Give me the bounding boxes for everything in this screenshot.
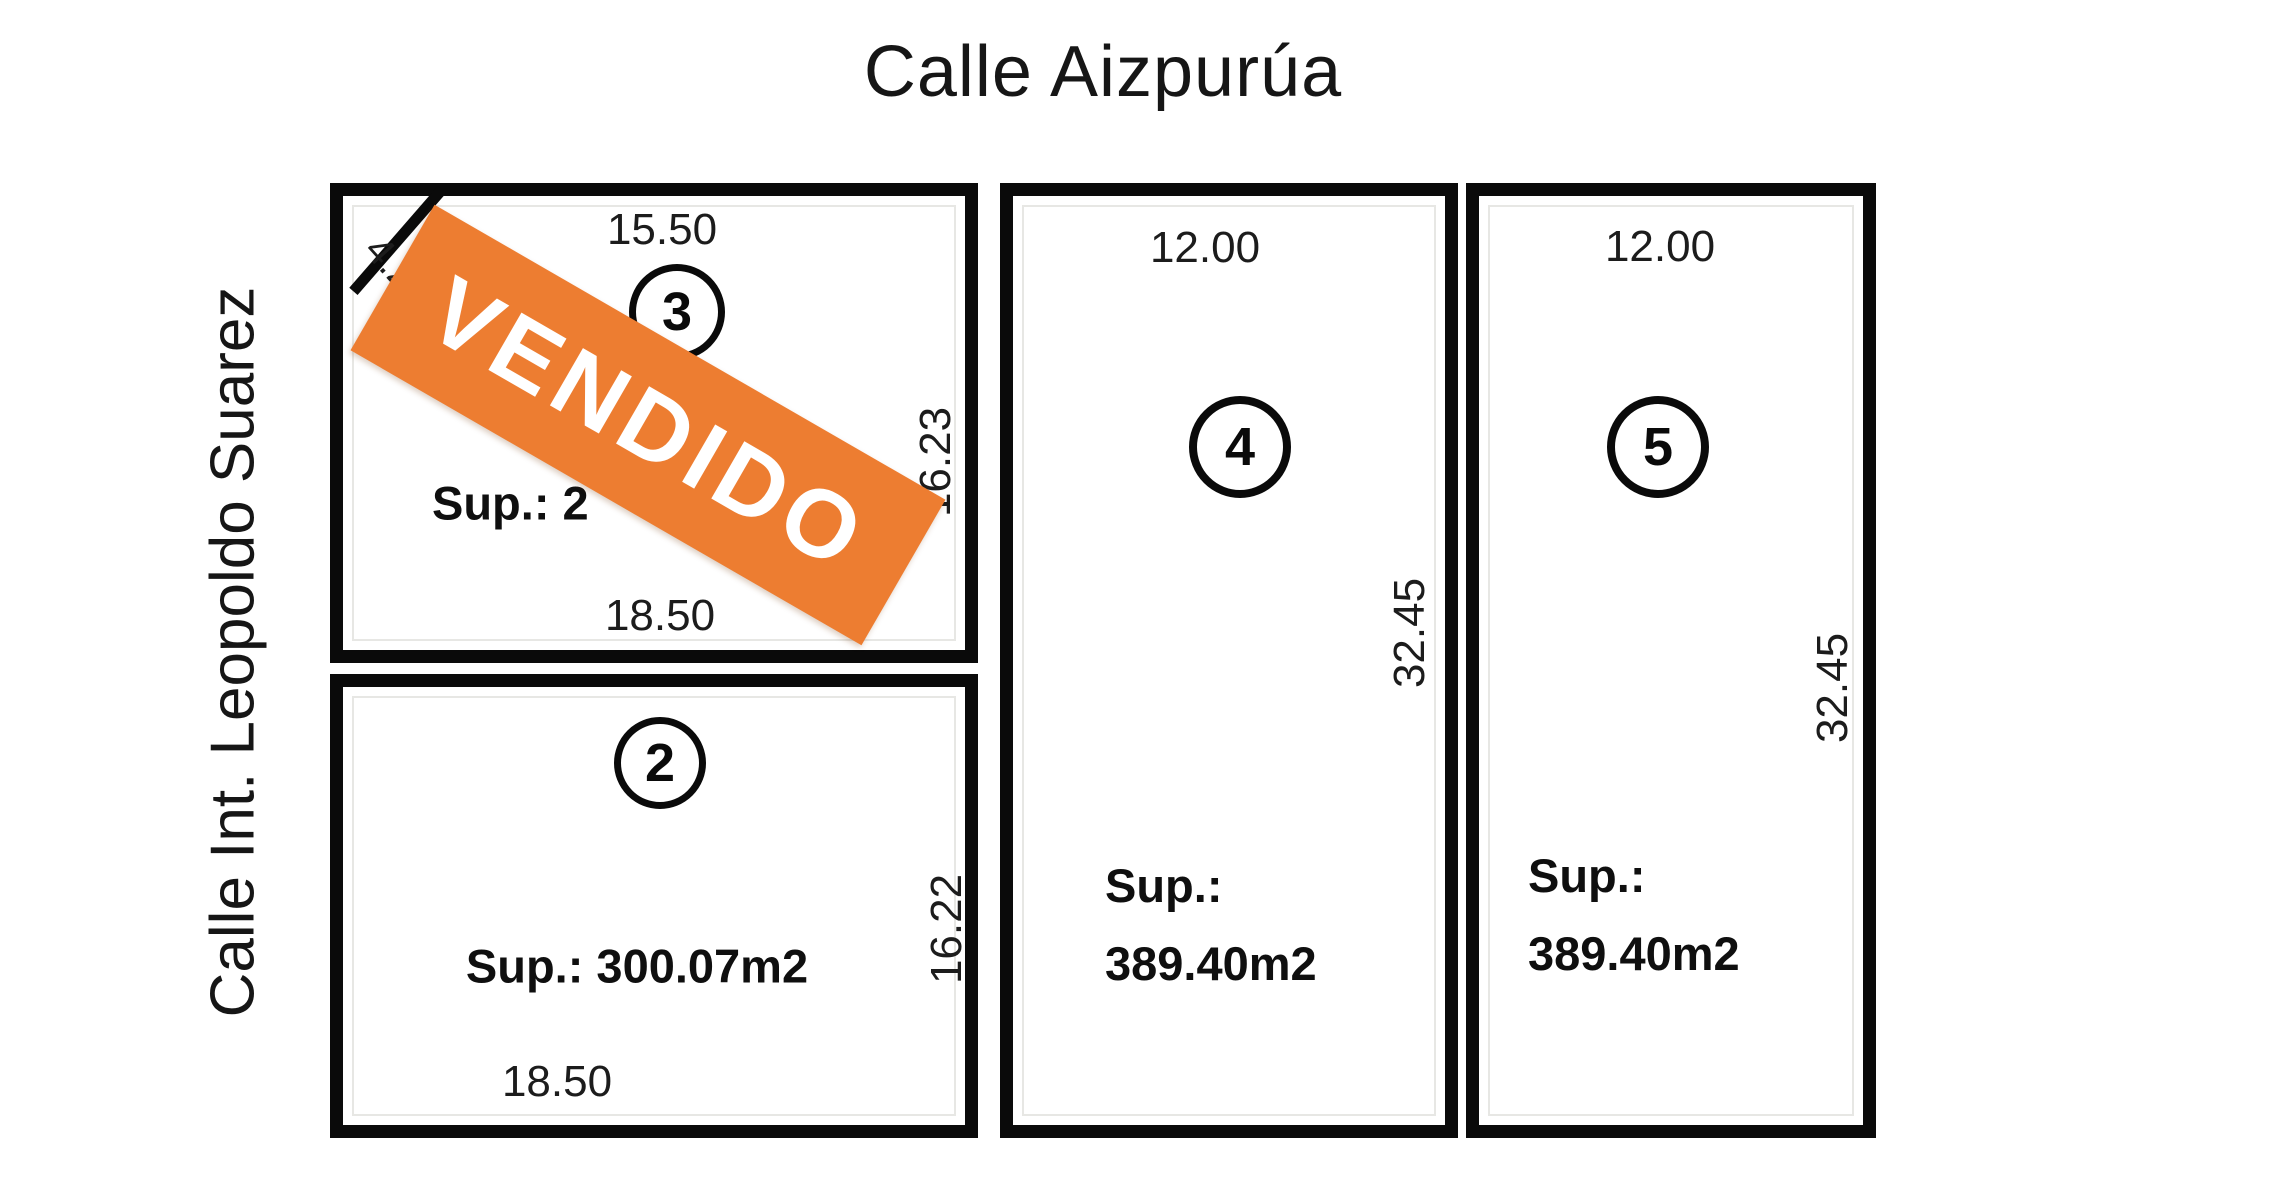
lot-3-top-dimension: 15.50 bbox=[607, 205, 717, 255]
lot-2-number-badge: 2 bbox=[614, 717, 706, 809]
lot-5-number: 5 bbox=[1643, 416, 1673, 478]
street-label-top: Calle Aizpurúa bbox=[864, 31, 1342, 113]
lot-4-top-dimension: 12.00 bbox=[1150, 223, 1260, 273]
lot-2-bottom-dimension: 18.50 bbox=[502, 1057, 612, 1107]
lot-5-surface-line2: 389.40m2 bbox=[1528, 915, 1740, 993]
lot-2-surface-label: Sup.: 300.07m2 bbox=[466, 939, 808, 994]
lot-5-number-badge: 5 bbox=[1607, 396, 1709, 498]
street-label-left: Calle Int. Leopoldo Suarez bbox=[198, 287, 269, 1018]
lot-4-number-badge: 4 bbox=[1189, 396, 1291, 498]
lot-4-side-dimension: 32.45 bbox=[1385, 578, 1435, 688]
lot-3-number: 3 bbox=[662, 281, 692, 343]
lot-5-surface-line1: Sup.: bbox=[1528, 837, 1740, 915]
subdivision-site-plan: Calle Aizpurúa Calle Int. Leopoldo Suare… bbox=[0, 0, 2293, 1200]
lot-4-surface-label: Sup.: 389.40m2 bbox=[1105, 847, 1317, 1003]
lot-2-number: 2 bbox=[645, 732, 675, 794]
lot-4-surface-line2: 389.40m2 bbox=[1105, 925, 1317, 1003]
lot-3-surface-label: Sup.: 2 bbox=[432, 476, 589, 531]
lot-5-top-dimension: 12.00 bbox=[1605, 222, 1715, 272]
lot-5-side-dimension: 32.45 bbox=[1808, 633, 1858, 743]
lot-2-right-dimension: 16.22 bbox=[922, 874, 972, 984]
lot-5-surface-label: Sup.: 389.40m2 bbox=[1528, 837, 1740, 993]
lot-4-surface-line1: Sup.: bbox=[1105, 847, 1317, 925]
lot-3-bottom-dimension: 18.50 bbox=[605, 591, 715, 641]
lot-4-number: 4 bbox=[1225, 416, 1255, 478]
